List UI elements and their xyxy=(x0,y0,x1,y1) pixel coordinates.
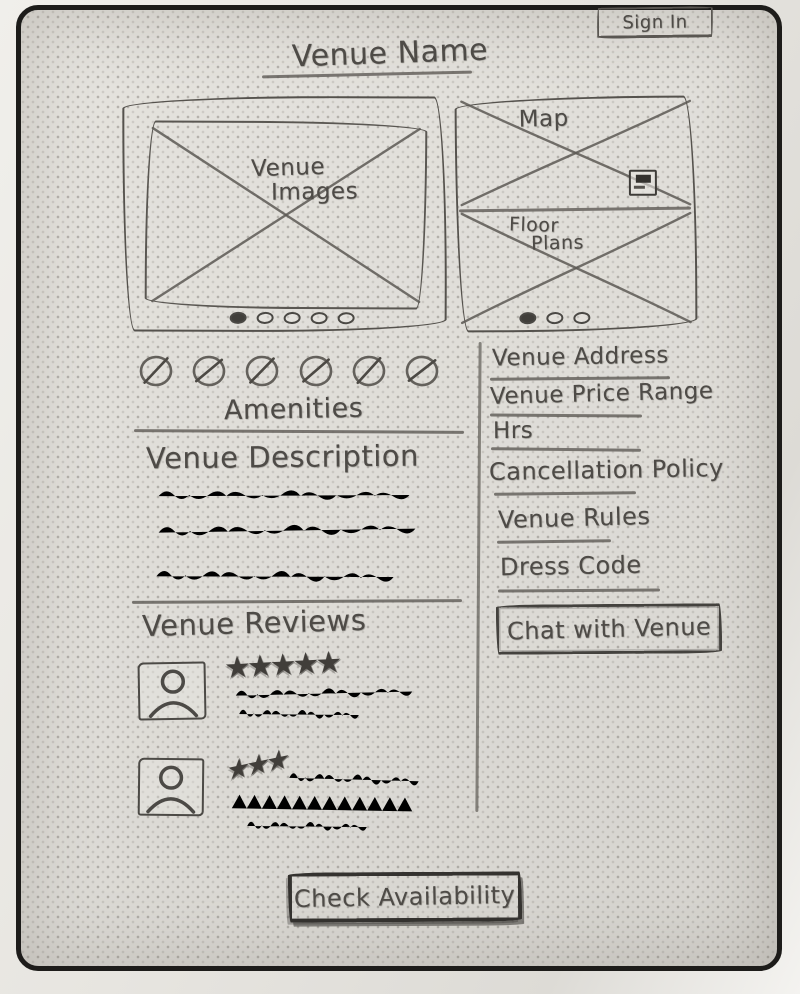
text-placeholder-squiggle xyxy=(288,768,421,791)
carousel-dot[interactable] xyxy=(546,311,564,324)
floor-plans-placeholder[interactable]: Floor Plans xyxy=(457,210,695,327)
amenity-icon xyxy=(295,351,337,391)
sketch-photo: Sign In Venue Name Venue Images xyxy=(0,0,800,994)
venue-images-label-line2: Images xyxy=(271,178,358,205)
info-item-venue-price-range[interactable]: Venue Price Range xyxy=(490,378,714,410)
sign-in-label: Sign In xyxy=(622,11,687,33)
venue-images-placeholder[interactable]: Venue Images xyxy=(145,121,428,310)
info-underline xyxy=(494,491,636,495)
chat-with-venue-button[interactable]: Chat with Venue xyxy=(496,603,722,655)
venue-images-label-line1: Venue xyxy=(251,154,326,182)
carousel-dot[interactable] xyxy=(337,312,355,325)
sign-in-button[interactable]: Sign In xyxy=(597,6,713,39)
amenity-icon xyxy=(347,351,390,392)
info-item-venue-address[interactable]: Venue Address xyxy=(492,342,669,371)
description-heading: Venue Description xyxy=(146,439,419,476)
text-placeholder-squiggle xyxy=(230,790,418,815)
check-availability-label: Check Availability xyxy=(294,881,516,913)
amenities-icon-row xyxy=(136,352,442,390)
crossed-box-icon xyxy=(457,210,695,327)
map-label: Map xyxy=(518,106,569,133)
carousel-dot[interactable] xyxy=(519,312,537,325)
text-placeholder-squiggle xyxy=(246,817,368,835)
text-placeholder-squiggle xyxy=(238,705,360,723)
carousel-dot[interactable] xyxy=(573,311,591,324)
text-placeholder-squiggle xyxy=(234,682,414,703)
amenities-divider xyxy=(134,429,464,433)
info-underline xyxy=(490,413,642,417)
text-placeholder-squiggle xyxy=(156,486,412,504)
map-carousel-dots xyxy=(519,312,590,324)
amenity-icon xyxy=(400,350,444,392)
chat-with-venue-label: Chat with Venue xyxy=(507,613,712,646)
amenities-label: Amenities xyxy=(224,393,364,426)
reviewer-avatar xyxy=(137,661,206,720)
review-stars: ★★★ xyxy=(226,743,288,788)
person-icon xyxy=(140,663,205,718)
amenity-icon xyxy=(242,351,283,390)
review-stars: ★★★★★ xyxy=(223,645,339,686)
amenity-icon xyxy=(135,351,177,391)
reviews-divider xyxy=(132,599,462,603)
check-availability-button[interactable]: Check Availability xyxy=(288,871,522,922)
venue-images-panel[interactable]: Venue Images xyxy=(122,95,448,332)
info-underline xyxy=(498,588,660,592)
gallery-carousel-dots xyxy=(230,312,355,324)
info-item-cancellation-policy[interactable]: Cancellation Policy xyxy=(489,454,724,486)
reviews-heading: Venue Reviews xyxy=(142,603,367,643)
carousel-dot[interactable] xyxy=(256,311,274,324)
reviewer-avatar xyxy=(138,758,205,817)
column-divider xyxy=(475,342,481,812)
crossed-box-icon xyxy=(457,98,695,209)
map-control-icon[interactable] xyxy=(629,170,657,196)
carousel-dot[interactable] xyxy=(310,312,328,325)
carousel-dot[interactable] xyxy=(229,311,247,324)
carousel-dot[interactable] xyxy=(283,311,301,324)
info-item-hours[interactable]: Hrs xyxy=(493,418,533,444)
person-icon xyxy=(140,760,203,815)
info-item-dress-code[interactable]: Dress Code xyxy=(500,551,642,581)
info-underline xyxy=(497,539,611,543)
info-item-venue-rules[interactable]: Venue Rules xyxy=(498,502,651,534)
crossed-box-icon xyxy=(147,123,426,308)
map-placeholder[interactable]: Map xyxy=(457,98,695,209)
map-floorplans-panel: Map Floor Plans xyxy=(455,96,698,333)
text-placeholder-squiggle xyxy=(154,565,396,587)
page-title: Venue Name xyxy=(239,31,540,76)
info-underline xyxy=(491,447,641,451)
text-placeholder-squiggle xyxy=(156,519,418,542)
amenity-icon xyxy=(188,351,231,392)
floor-plans-label-line2: Plans xyxy=(531,232,584,255)
